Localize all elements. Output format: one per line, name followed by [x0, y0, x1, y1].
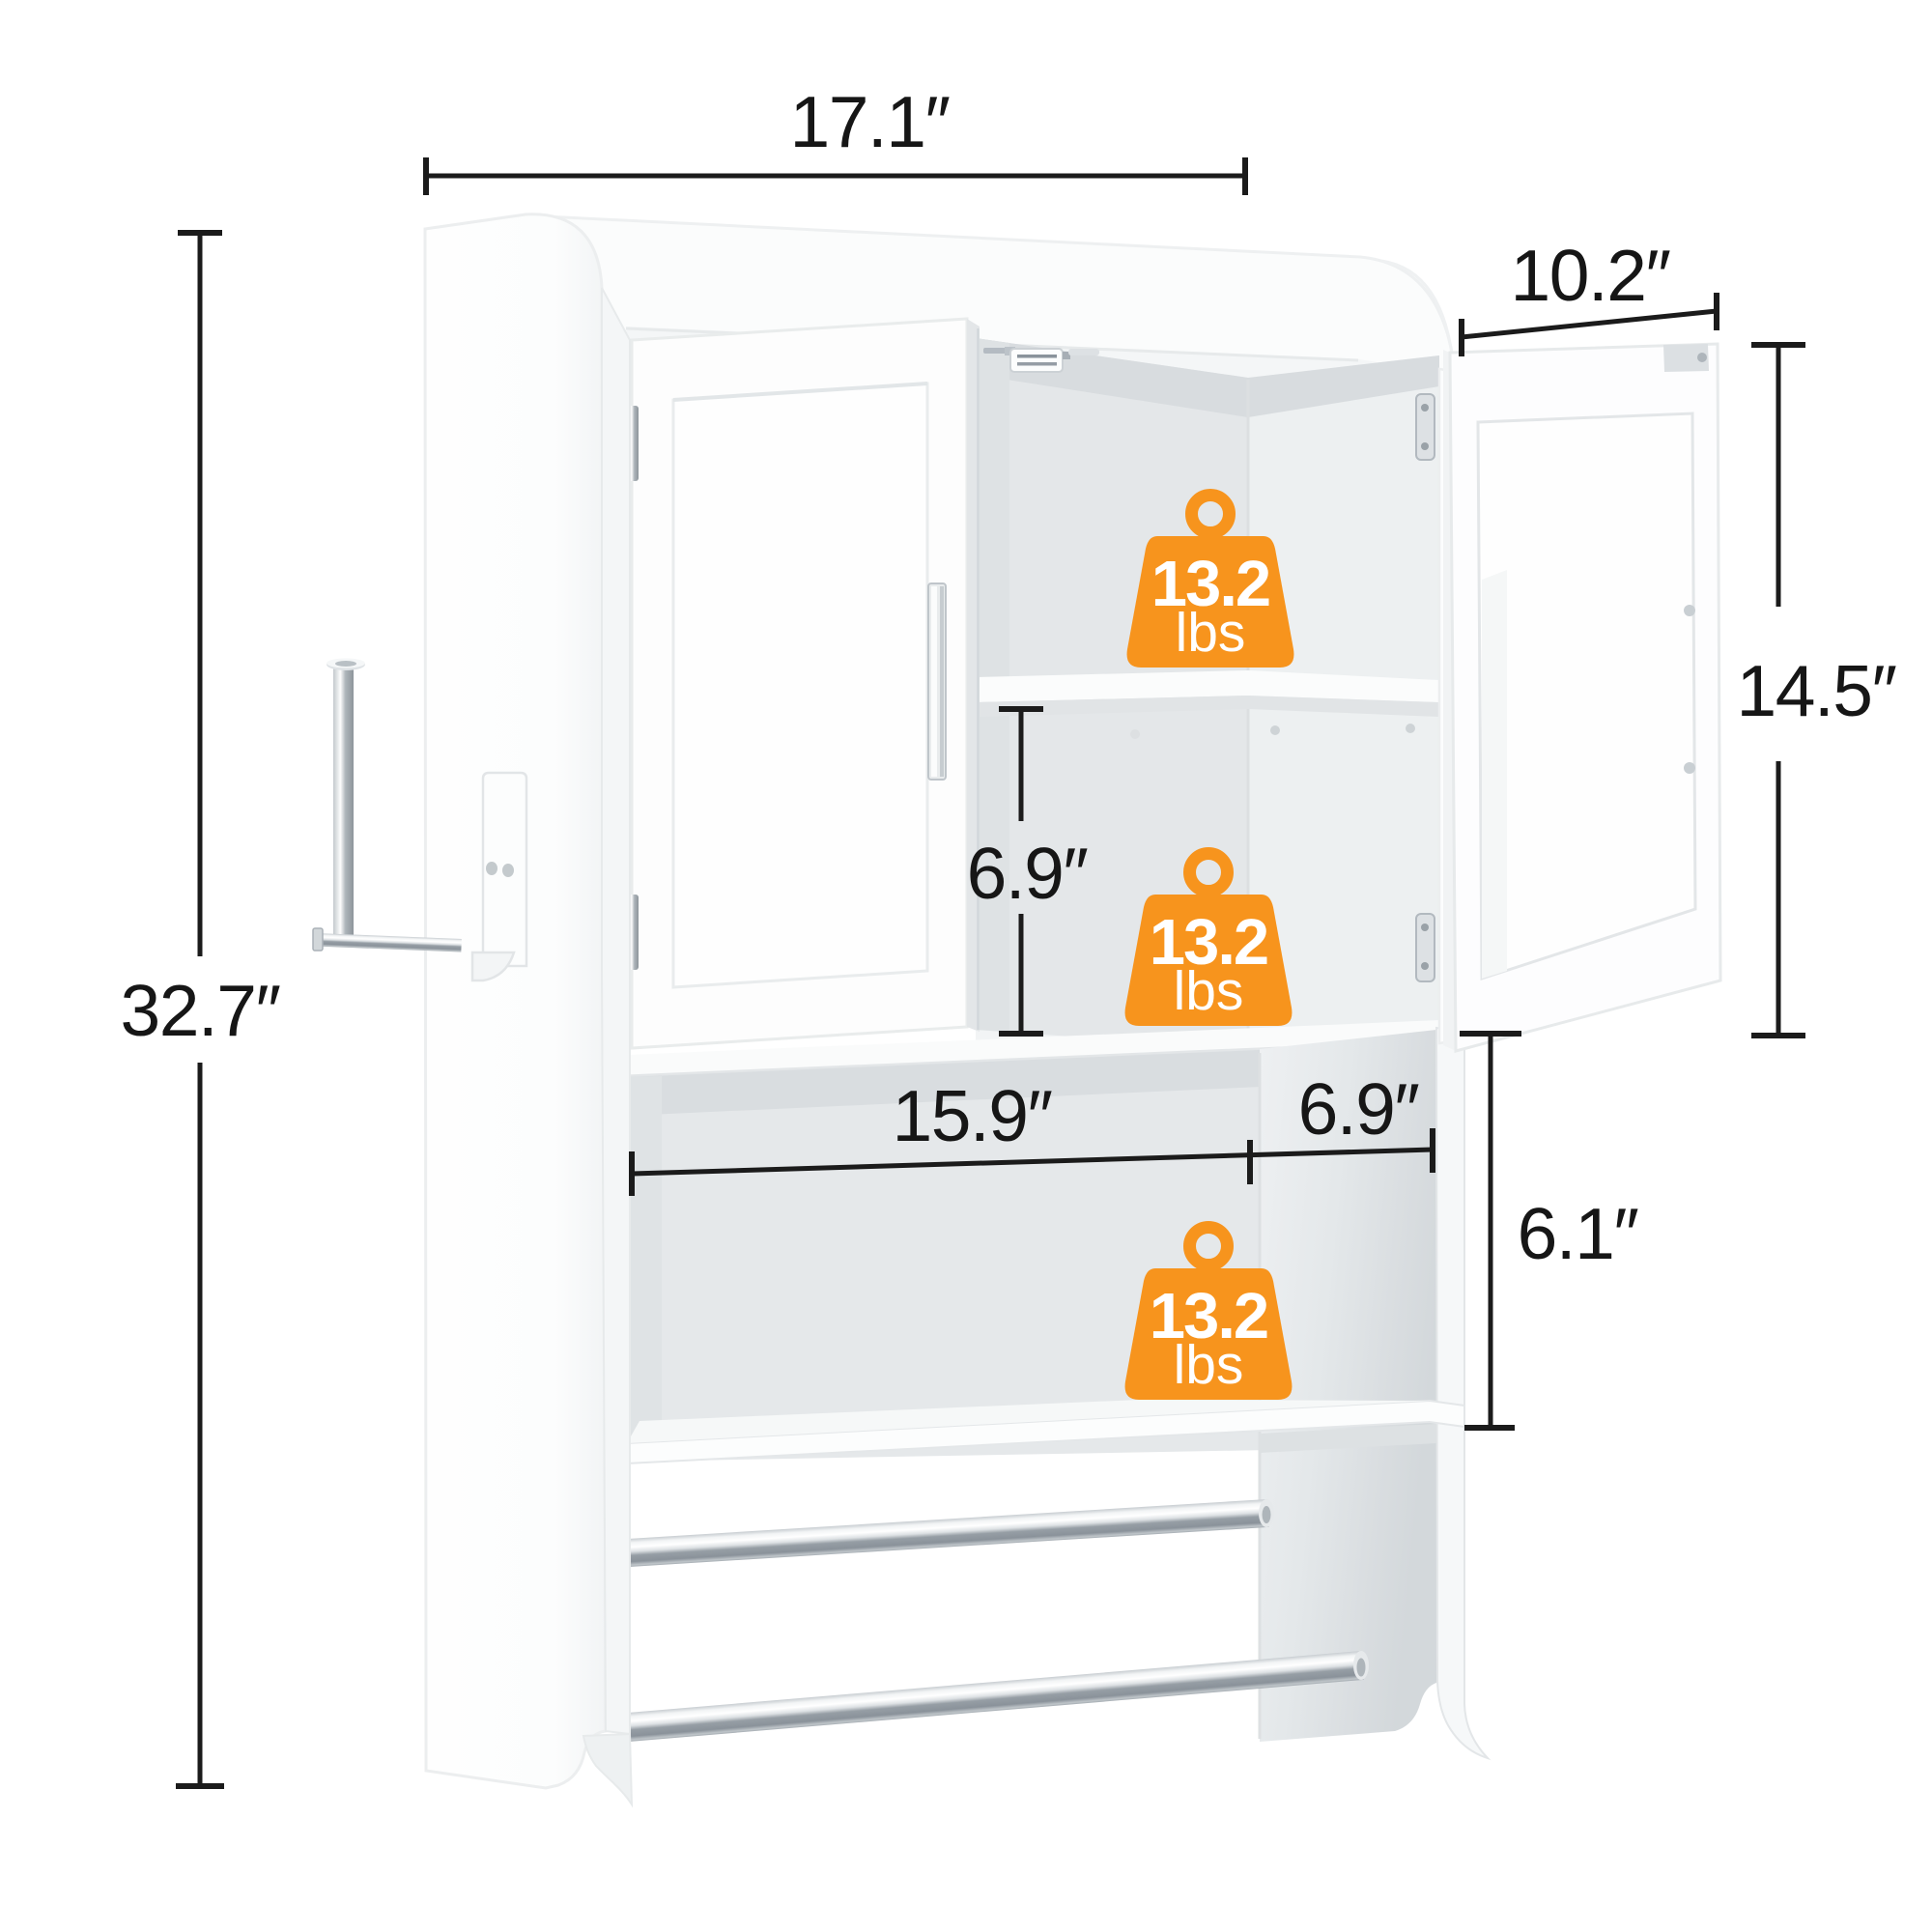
svg-text:6.9″: 6.9″ — [967, 833, 1089, 914]
svg-text:17.1″: 17.1″ — [789, 81, 950, 162]
svg-text:14.5″: 14.5″ — [1736, 650, 1896, 731]
svg-text:lbs: lbs — [1174, 1334, 1244, 1396]
svg-text:6.1″: 6.1″ — [1518, 1193, 1639, 1274]
svg-text:10.2″: 10.2″ — [1510, 235, 1670, 316]
svg-text:15.9″: 15.9″ — [892, 1075, 1052, 1156]
svg-text:lbs: lbs — [1176, 602, 1246, 664]
svg-text:6.9″: 6.9″ — [1298, 1068, 1420, 1150]
svg-text:32.7″: 32.7″ — [120, 970, 280, 1051]
svg-text:lbs: lbs — [1174, 960, 1244, 1022]
